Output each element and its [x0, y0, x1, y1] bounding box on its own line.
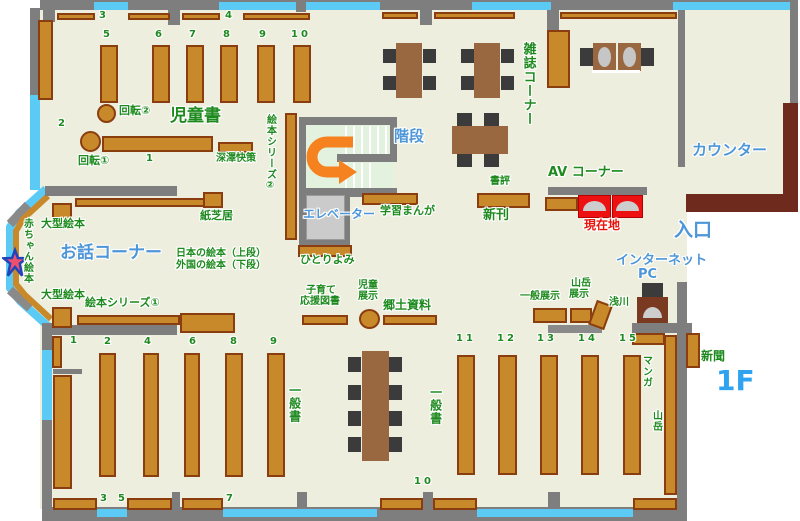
new-books-shelf [477, 193, 530, 208]
reading-table [396, 43, 422, 98]
kamishibai-shelf [75, 198, 205, 207]
shelf-13-stack [540, 355, 558, 475]
rotating-rack-1-label: 回転① [78, 155, 109, 167]
wall [53, 369, 82, 374]
mountain-display-label: 山岳 [571, 279, 591, 290]
chair [501, 76, 514, 90]
shelf-number: 2 [104, 337, 111, 348]
story-corner-label: お話コーナー [60, 245, 162, 263]
shelf-6-stack [184, 353, 200, 477]
general-books-label: 一般書 [288, 384, 301, 423]
shelf-number: 6 [155, 30, 162, 41]
shelf-number: 8 [230, 337, 237, 348]
mountain-display-label: 展示 [569, 290, 589, 301]
shelf-10 [293, 45, 311, 103]
sofa-base [592, 70, 640, 73]
shelf-number: 10 [291, 30, 311, 41]
window [219, 2, 296, 10]
wall-pillar [172, 492, 180, 508]
rotating-rack-1 [80, 131, 101, 152]
wall [790, 0, 798, 103]
reading-table [452, 126, 508, 154]
ehon-series1-shelf [180, 313, 235, 333]
shelf-12-stack [498, 355, 517, 475]
shelf [182, 498, 223, 510]
parenting-books-label: 子育て [306, 286, 336, 297]
window [673, 2, 790, 10]
chair [484, 154, 499, 167]
wall [677, 282, 687, 511]
wall-pillar [43, 0, 55, 22]
chair [457, 154, 472, 167]
chair [348, 385, 361, 400]
shelf-number: 14 [578, 334, 598, 345]
shelf-1-stack [52, 336, 62, 368]
shelf [434, 12, 515, 19]
internet-pc-label: PC [638, 268, 657, 282]
chair [348, 411, 361, 426]
shelf [57, 13, 95, 20]
rotating-rack-2 [97, 104, 116, 123]
ehon-series2-shelf [285, 113, 297, 240]
chair [389, 437, 402, 452]
children-display-table [359, 309, 380, 329]
kamishibai-shelf [203, 192, 223, 208]
rotating-rack-2-label: 回転② [119, 105, 150, 117]
floor-indicator: 1F [716, 366, 755, 395]
study-manga-label: 学習まんが [380, 205, 435, 217]
shelf [433, 498, 477, 510]
chair [348, 437, 361, 452]
entrance-label: 入口 [674, 221, 712, 241]
shelf-number: 11 [456, 334, 476, 345]
foreign-picture-books-label: 外国の絵本（下段） [176, 261, 266, 272]
window [306, 2, 380, 10]
wall-pillar [296, 0, 306, 12]
shelf-9-stack [267, 353, 285, 477]
stairs-label: 階段 [394, 129, 424, 145]
newspaper-shelf [686, 333, 700, 368]
shelf [53, 375, 72, 489]
shelf-8 [220, 45, 238, 103]
ehon-series1-shelf [77, 315, 180, 325]
chair [484, 113, 499, 126]
chair [383, 49, 396, 63]
window [472, 2, 551, 10]
shelf-7 [186, 45, 204, 103]
newspaper-label: 新聞 [701, 350, 725, 363]
shelf-number: 13 [537, 334, 557, 345]
chair [383, 76, 396, 90]
sofa-cushion [623, 47, 636, 67]
magazine-corner-label: 雑誌コーナー [521, 42, 535, 126]
reading-table [362, 351, 389, 461]
window [42, 350, 52, 420]
shelf [127, 498, 172, 510]
shelf [243, 13, 310, 20]
sofa-cushion [598, 47, 611, 67]
japanese-picture-books-label: 日本の絵本（上段） [176, 249, 266, 260]
shelf-number: 10 [414, 477, 434, 488]
chair [389, 357, 402, 372]
shelf-number: 3 [99, 11, 106, 22]
shelf [53, 498, 97, 510]
shelf-number: 1 [146, 154, 153, 165]
av-shelf [545, 197, 578, 211]
children-area-label: 児童書 [170, 108, 221, 126]
shelf-number: 5 [118, 494, 125, 505]
shelf-4-stack [143, 353, 159, 477]
counter-desk [686, 194, 798, 212]
window [30, 95, 40, 190]
av-corner-label: AV コーナー [548, 166, 624, 180]
shelf-14-stack [581, 355, 599, 475]
chair [461, 49, 474, 63]
window [97, 509, 127, 517]
chair [501, 49, 514, 63]
shelf-number: 7 [226, 494, 233, 505]
counter-desk [783, 103, 798, 195]
wall-pillar [548, 492, 560, 508]
shelf-number: 3 [100, 494, 107, 505]
magazine-shelf [547, 30, 570, 88]
chair [389, 411, 402, 426]
wall [678, 0, 685, 167]
wall [45, 186, 177, 196]
hitoriyomi-label: ひとりよみ [300, 254, 355, 266]
shelf-number: 4 [144, 337, 151, 348]
book-review-label: 書評 [490, 177, 510, 188]
reading-table [474, 43, 500, 98]
shelf-2-stack [99, 353, 116, 477]
shelf [380, 498, 423, 510]
shelf-number: 15 [619, 334, 639, 345]
shelf-1-center [102, 136, 213, 152]
general-books-label: 一般書 [429, 386, 442, 425]
chair [423, 49, 436, 63]
shelf-number: 5 [103, 30, 110, 41]
wall-pillar [420, 0, 432, 25]
shelf-9 [257, 45, 275, 103]
new-books-label: 新刊 [483, 209, 509, 223]
wall-pillar [423, 492, 433, 508]
children-display-label: 児童 [358, 281, 378, 292]
kamishibai-label: 紙芝居 [200, 210, 233, 222]
shelf [128, 13, 170, 20]
fukazawa-label: 深澤快策 [216, 154, 256, 165]
big-picture-book-shelf [52, 307, 72, 328]
mountain-books-label: 山岳 [650, 410, 661, 432]
shelf-number: 4 [225, 11, 232, 22]
internet-pc-label: インターネット [616, 254, 707, 268]
shelf-5 [100, 45, 118, 103]
local-history-label: 郷土資料 [383, 299, 431, 312]
chair [423, 76, 436, 90]
window [94, 2, 128, 10]
shelf-number: 1 [70, 336, 77, 347]
shelf [182, 13, 220, 20]
library-floor-map: 3 4 5 6 7 8 9 10 2 1 回転② 回転① 児童書 深澤快策 絵本… [0, 0, 800, 521]
wall [548, 187, 647, 195]
shelf-11-stack [457, 355, 475, 475]
asakawa-label: 浅川 [609, 298, 629, 309]
chair [348, 357, 361, 372]
sofa-armrest [580, 48, 593, 66]
shelf-number: 9 [259, 30, 266, 41]
shelf-15-stack [623, 355, 641, 475]
parenting-books-label: 応援図書 [300, 297, 340, 308]
local-history-shelf [383, 315, 437, 325]
mountain-books-shelf [664, 335, 677, 495]
shelf-number: 9 [270, 337, 277, 348]
fukazawa-shelf [218, 142, 253, 153]
wall-pillar [297, 492, 307, 508]
big-picture-book-label: 大型絵本 [41, 218, 85, 230]
elevator-label: エレベーター [303, 208, 375, 221]
stair-wall [299, 117, 397, 125]
shelf-number: 12 [497, 334, 517, 345]
chair [457, 113, 472, 126]
shelf-8-stack [225, 353, 243, 477]
general-display-shelf [533, 308, 567, 323]
ehon-series1-label: 絵本シリーズ① [85, 297, 160, 309]
shelf-number: 6 [189, 337, 196, 348]
big-picture-book-label: 大型絵本 [41, 289, 85, 301]
counter-room-floor [685, 8, 798, 212]
children-display-label: 展示 [358, 292, 378, 303]
baby-books-label: 赤ちゃん絵本 [21, 218, 32, 284]
shelf [382, 12, 418, 19]
general-display-label: 一般展示 [520, 292, 560, 303]
shelf-6 [152, 45, 170, 103]
chair [389, 385, 402, 400]
chair [461, 76, 474, 90]
pc-monitor [642, 283, 663, 298]
shelf-number: 8 [223, 30, 230, 41]
shelf [38, 20, 53, 100]
wall [632, 323, 692, 333]
ehon-series2-label: 絵本シリーズ② [264, 114, 275, 192]
shelf-number: 2 [58, 119, 65, 130]
counter-label: カウンター [692, 143, 767, 159]
parenting-books-shelf [302, 315, 348, 325]
you-are-here-label: 現在地 [584, 219, 620, 232]
manga-label: マンガ [640, 355, 651, 388]
stairs-direction-arrow [303, 134, 361, 186]
window [477, 509, 633, 517]
window [223, 509, 377, 517]
sofa-armrest [641, 48, 654, 66]
shelf [633, 498, 677, 510]
shelf [560, 12, 677, 19]
shelf-number: 7 [189, 30, 196, 41]
